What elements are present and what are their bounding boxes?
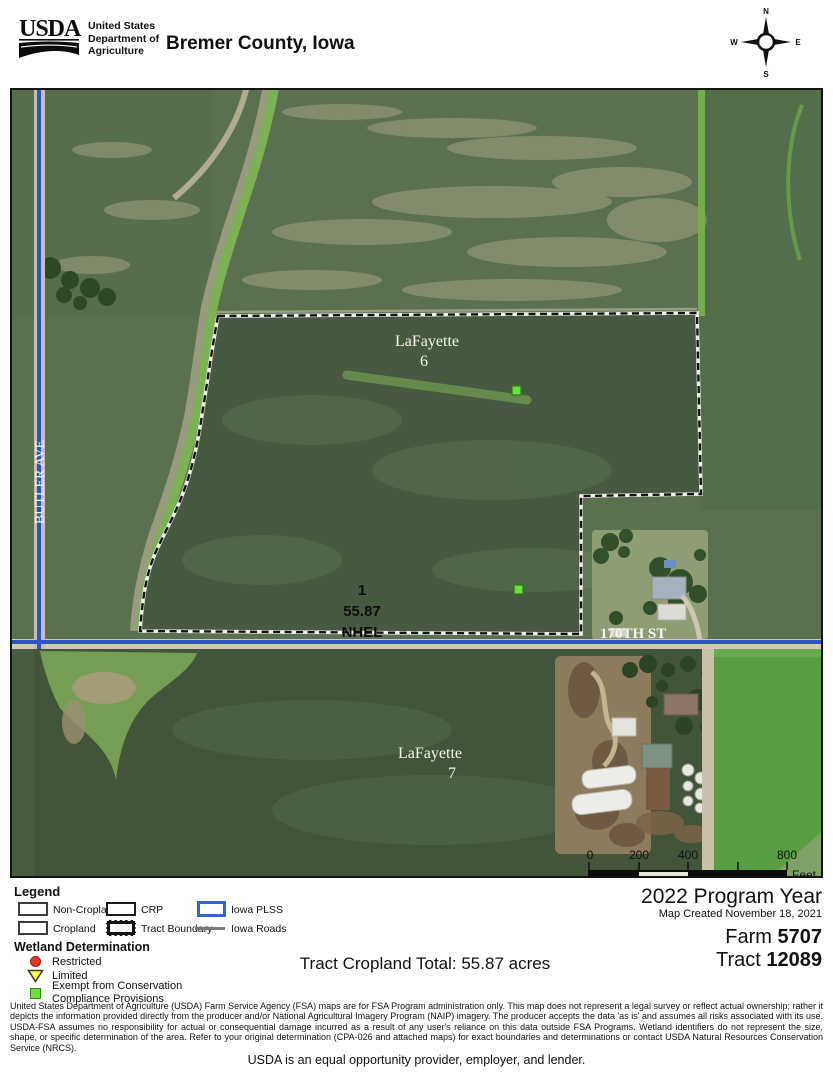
- restricted-icon: [30, 956, 41, 967]
- agency-line-2: Department of: [88, 33, 159, 46]
- tract-cropland-total: Tract Cropland Total: 55.87 acres: [230, 954, 620, 974]
- farm-number-line: Farm 5707: [641, 926, 822, 949]
- legend-swatch-cropland: [18, 921, 48, 935]
- scale-tick-200: 200: [629, 848, 649, 862]
- scale-tick-0: 0: [587, 848, 594, 862]
- scale-bar-band-light: [639, 872, 688, 876]
- agency-line-1: United States: [88, 20, 159, 33]
- agency-line-3: Agriculture: [88, 45, 159, 58]
- legend-label-crp: CRP: [141, 904, 163, 916]
- compass-e-label: E: [795, 38, 801, 47]
- program-year: 2022 Program Year: [641, 885, 822, 908]
- usda-logo: USDA: [18, 14, 82, 64]
- compass-s-label: S: [763, 70, 769, 79]
- road-label-butler-ave: BUTLER AVE: [33, 440, 48, 524]
- legend-label-cropland: Cropland: [53, 923, 96, 935]
- tract-hel-status: NHEL: [342, 624, 383, 641]
- farm-number: 5707: [778, 926, 823, 948]
- compass-rose: N S E W: [730, 5, 802, 79]
- wetland-determination-title: Wetland Determination: [14, 940, 150, 954]
- farm-label: Farm: [725, 926, 772, 948]
- exempt-icon: [30, 988, 41, 999]
- section-label-lafayette-6: LaFayette: [395, 333, 459, 350]
- disclaimer-text: United States Department of Agriculture …: [10, 1001, 823, 1053]
- white-shed: [612, 718, 636, 736]
- limited-icon: [27, 969, 44, 983]
- farm-house-roof: [664, 694, 698, 715]
- wetland-label-restricted: Restricted: [52, 956, 102, 968]
- legend-title: Legend: [14, 884, 60, 899]
- farm-road: [702, 649, 714, 876]
- section-number-6: 6: [420, 353, 428, 370]
- legend-swatch-iowa-plss: [197, 901, 226, 917]
- legend-swatch-iowa-roads: [195, 927, 225, 930]
- aerial-map: LaFayette 6 BUTLER AVE 170TH ST LaFayett…: [10, 88, 823, 878]
- field-bottom-right: [714, 649, 821, 876]
- tract-field-number: 1: [358, 582, 366, 599]
- legend-label-iowa-roads: Iowa Roads: [231, 923, 286, 935]
- field-bottom-left-sliver: [12, 649, 34, 876]
- bare-patch: [72, 672, 136, 704]
- map-info-block: 2022 Program Year Map Created November 1…: [641, 885, 822, 972]
- feed-alley: [646, 768, 670, 810]
- scale-tick-400: 400: [678, 848, 698, 862]
- page-title: Bremer County, Iowa: [166, 33, 355, 55]
- logo-swoosh: [19, 42, 79, 59]
- compass-n-label: N: [763, 7, 769, 16]
- fsa-map-page: USDA United States Department of Agricul…: [0, 0, 833, 1080]
- field-divider-green: [698, 90, 705, 316]
- scale-tick-800: 800: [777, 848, 797, 862]
- section-label-lafayette-7: LaFayette: [398, 745, 462, 762]
- legend-swatch-tract-boundary: [106, 920, 136, 936]
- map-created-date: Map Created November 18, 2021: [641, 908, 822, 921]
- tract-acres: 55.87: [343, 603, 381, 620]
- legend-swatch-crp: [106, 902, 136, 916]
- blue-structure: [664, 560, 676, 568]
- outbuilding: [658, 604, 686, 620]
- equal-opportunity-statement: USDA is an equal opportunity provider, e…: [0, 1053, 833, 1067]
- section-number-7: 7: [448, 765, 456, 782]
- compass-w-label: W: [730, 38, 738, 47]
- field-bottom-right-edge: [714, 649, 821, 657]
- farmstead-north: [592, 529, 708, 640]
- wetland-exempt-marker-1: [512, 386, 521, 395]
- tract-number-line: Tract 12089: [641, 949, 822, 972]
- tract-label: Tract: [716, 949, 761, 971]
- wetland-exempt-marker-2: [514, 585, 523, 594]
- agency-name: United States Department of Agriculture: [88, 20, 159, 58]
- aerial-map-canvas: LaFayette 6 BUTLER AVE 170TH ST LaFayett…: [12, 90, 821, 876]
- compass-hub: [758, 34, 774, 50]
- scale-unit: Feet: [792, 868, 817, 876]
- usda-logo-text: USDA: [19, 16, 82, 42]
- legend-swatch-non-cropland: [18, 902, 48, 916]
- green-roof-barn: [642, 744, 672, 768]
- bare-patch-2: [62, 700, 86, 744]
- legend-label-iowa-plss: Iowa PLSS: [231, 904, 283, 916]
- road-line-170th-st: [12, 640, 821, 644]
- tract-number: 12089: [766, 949, 822, 971]
- house-roof: [652, 577, 686, 599]
- road-label-170th-st: 170TH ST: [600, 626, 666, 642]
- field-top-right: [700, 90, 821, 510]
- logo-rule: [19, 39, 79, 41]
